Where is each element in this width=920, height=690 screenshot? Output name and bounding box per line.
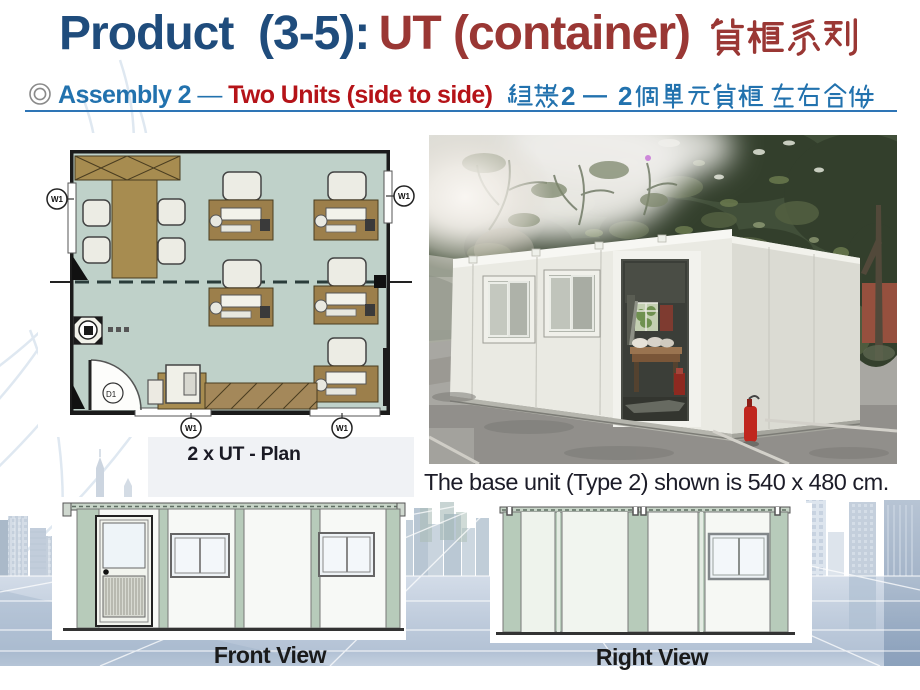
svg-text:2: 2 (618, 81, 632, 111)
svg-text:W1: W1 (185, 424, 198, 433)
svg-text:—: — (583, 82, 607, 109)
svg-text:2 x UT - Plan: 2 x UT - Plan (187, 443, 300, 465)
svg-text:W1: W1 (51, 195, 64, 204)
svg-text:2: 2 (561, 81, 575, 111)
svg-text:W1: W1 (336, 424, 349, 433)
svg-text:D1: D1 (106, 390, 117, 399)
svg-text:W1: W1 (398, 192, 411, 201)
